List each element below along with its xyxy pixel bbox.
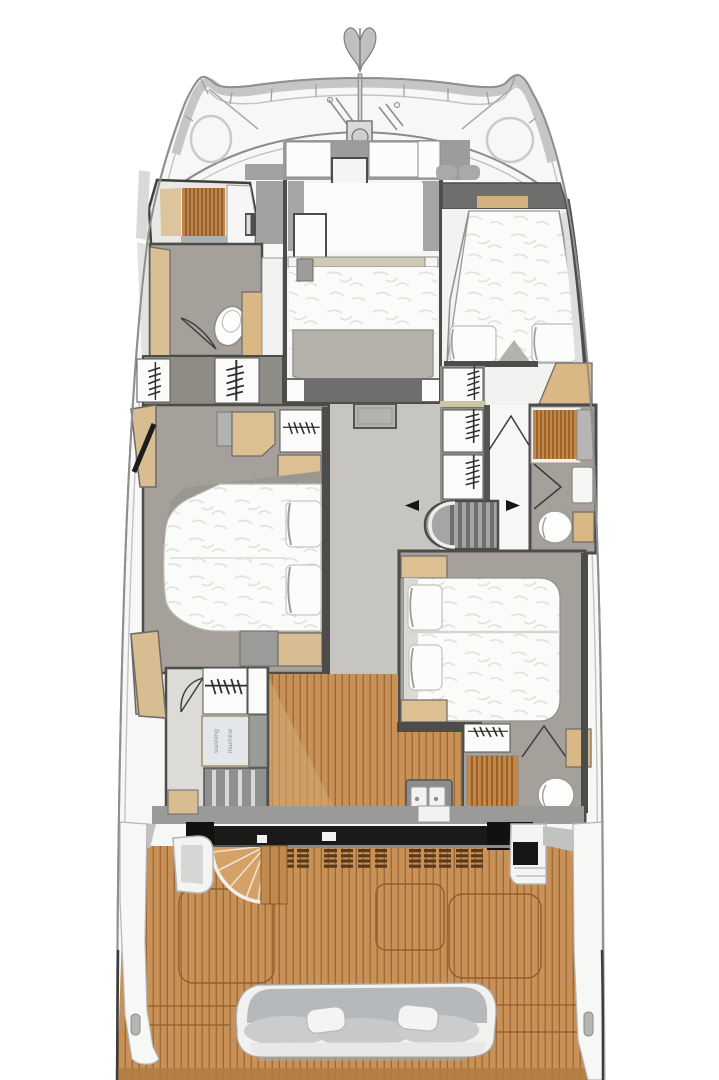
svg-text:machine: machine [227, 728, 234, 753]
svg-text:washing: washing [213, 729, 220, 754]
